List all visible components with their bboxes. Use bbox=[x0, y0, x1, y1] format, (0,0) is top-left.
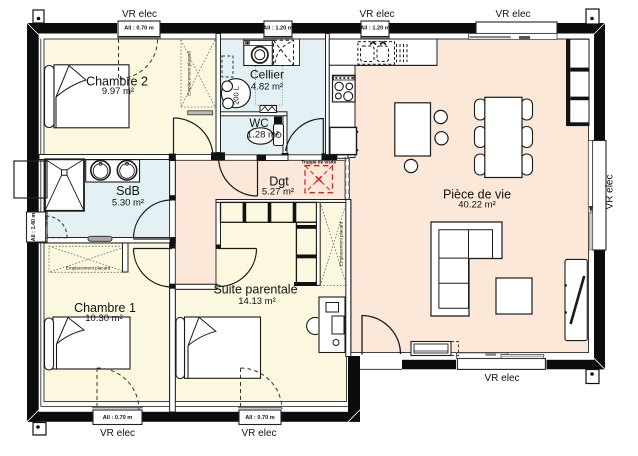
svg-text:SdB: SdB bbox=[116, 184, 140, 198]
svg-text:VR elec: VR elec bbox=[241, 428, 276, 439]
svg-text:VR elec: VR elec bbox=[605, 174, 616, 209]
svg-text:All : 0.70 m: All : 0.70 m bbox=[245, 415, 275, 421]
svg-text:WC: WC bbox=[249, 118, 268, 130]
svg-text:All : 0.70 m: All : 0.70 m bbox=[103, 415, 133, 421]
svg-text:All : 1.20 m: All : 1.20 m bbox=[263, 26, 293, 32]
svg-text:VR elec: VR elec bbox=[484, 373, 519, 384]
svg-text:VR elec: VR elec bbox=[122, 9, 157, 20]
svg-text:Trappe de visite: Trappe de visite bbox=[301, 160, 336, 165]
svg-text:All : 0.70 m: All : 0.70 m bbox=[124, 26, 154, 32]
svg-text:10.30 m²: 10.30 m² bbox=[85, 313, 123, 324]
svg-text:VR elec: VR elec bbox=[100, 428, 135, 439]
svg-text:All : 1.40 m: All : 1.40 m bbox=[31, 213, 37, 242]
svg-text:VR elec: VR elec bbox=[359, 9, 394, 20]
svg-text:Suite parentale: Suite parentale bbox=[213, 283, 297, 297]
svg-text:Emplacement placard: Emplacement placard bbox=[66, 266, 111, 271]
svg-text:4.82 m²: 4.82 m² bbox=[251, 82, 283, 93]
svg-text:40.22 m²: 40.22 m² bbox=[458, 199, 496, 210]
svg-text:Emplacement placard: Emplacement placard bbox=[187, 51, 192, 96]
svg-text:Cellier: Cellier bbox=[250, 68, 284, 82]
svg-text:9.97 m²: 9.97 m² bbox=[102, 86, 134, 97]
svg-text:200 L: 200 L bbox=[232, 86, 241, 105]
svg-text:5.30 m²: 5.30 m² bbox=[112, 198, 144, 209]
svg-text:5.27 m²: 5.27 m² bbox=[262, 187, 294, 198]
svg-text:14.13 m²: 14.13 m² bbox=[238, 296, 276, 307]
svg-text:VR elec: VR elec bbox=[495, 9, 530, 20]
svg-text:1.28 m²: 1.28 m² bbox=[247, 130, 279, 141]
svg-text:All : 1.20 m: All : 1.20 m bbox=[360, 26, 390, 32]
svg-text:Emplacement placard: Emplacement placard bbox=[339, 221, 344, 266]
